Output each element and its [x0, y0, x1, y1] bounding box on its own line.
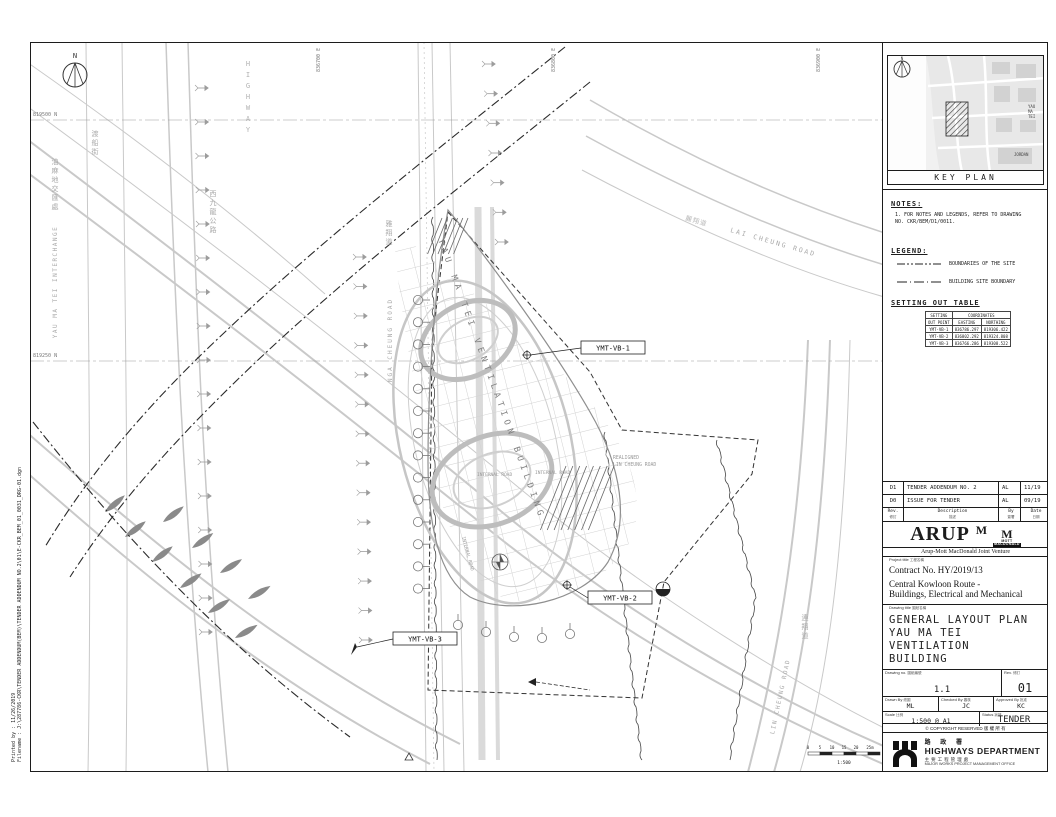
- grid-northing-1: 819500 N: [33, 112, 57, 118]
- so-col-easting: EASTING: [952, 319, 981, 326]
- keyplan-ymt-3: TEI: [1028, 114, 1036, 119]
- level-marker: [492, 554, 508, 570]
- mott-m2-logo: M: [1001, 528, 1012, 540]
- tunnel-loops: [363, 261, 608, 622]
- so-cell: YMT-VB-3: [926, 340, 953, 347]
- legend-line-site-boundary: [897, 261, 941, 267]
- legend-item-building-site: BUILDING SITE BOUNDARY: [897, 279, 1040, 285]
- road-label-lin-cheung: LIN CHEUNG ROAD: [769, 658, 792, 734]
- arup-logo: ARUP: [910, 523, 970, 546]
- grid-bubbles-bottom: [453, 614, 574, 643]
- road-label-lai-cheung: LAI CHEUNG ROAD: [729, 226, 816, 258]
- legend-label-site-boundary: BOUNDARIES OF THE SITE: [949, 261, 1015, 267]
- keyplan-section: N YAU MA TEI JORDAN KEY PLAN: [883, 42, 1048, 189]
- road-label-ferry-street-zh: 渡船街: [90, 130, 98, 157]
- rev-value: 01: [1002, 681, 1048, 695]
- legend-item-site-boundary: BOUNDARIES OF THE SITE: [897, 261, 1040, 267]
- rev-hd-by-zh: 簽署: [1008, 515, 1015, 520]
- internal-road-2: INTERNAL ROAD: [535, 470, 571, 476]
- keyplan-map: N YAU MA TEI JORDAN: [888, 56, 1043, 171]
- rev-cell: Rev. 修訂 01: [1001, 670, 1048, 696]
- note-item-1: 1. FOR NOTES AND LEGENDS, REFER TO DRAWI…: [895, 212, 1025, 225]
- rev-id: D1: [883, 482, 903, 494]
- road-label-highway: HIGHWAY: [244, 60, 252, 137]
- road-label-nga-cheung: NGA CHEUNG ROAD: [387, 298, 394, 382]
- title-block: N YAU MA TEI JORDAN KEY PLAN NOTES: 1. F…: [882, 42, 1048, 772]
- checked-by-value: JC: [939, 702, 993, 710]
- drawing-no-label-zh: 圖紙編號: [907, 671, 921, 675]
- drawing-no-label: Drawing no.: [885, 670, 906, 675]
- notes-legend-section: NOTES: 1. FOR NOTES AND LEGENDS, REFER T…: [883, 189, 1048, 481]
- setting-out-table: SETTING COORDINATES OUT POINT EASTING NO…: [925, 311, 1011, 347]
- so-cell: 836802.292: [952, 333, 981, 340]
- project-title-line2: Buildings, Electrical and Mechanical: [889, 589, 1042, 599]
- mott-m1-logo: M: [976, 524, 987, 536]
- highways-department-icon: [891, 741, 919, 767]
- rev-id: D0: [883, 495, 903, 507]
- plan-area: N 819500 N 819250 N 836700 E 836800 E 83…: [30, 42, 882, 772]
- road-label-interchange: YAU MA TEI INTERCHANGE: [52, 226, 59, 338]
- scale-bar: 0 5 10 15 20 25m 1:500: [807, 745, 880, 766]
- so-col-coordinates: COORDINATES: [952, 312, 1010, 319]
- drawing-title-line2: YAU MA TEI VENTILATION: [889, 627, 1042, 653]
- copyright-strip: © COPYRIGHT RESERVED 版 權 所 有: [883, 723, 1048, 732]
- drawing-numbers-box: Drawing no. 圖紙編號 1.1 Rev. 修訂 01 Drawn By…: [883, 669, 1048, 723]
- approved-by-value: KC: [994, 702, 1048, 710]
- project-title-line1: Central Kowloon Route -: [889, 579, 1042, 589]
- contract-no: Contract No. HY/2019/13: [889, 565, 1042, 575]
- so-cell: 836786.297: [952, 326, 981, 333]
- callout-ymt-vb-2: YMT-VB-2: [562, 580, 670, 604]
- so-col-northing: NORTHING: [981, 319, 1010, 326]
- realigned-road-note: REALIGNED LIN CHEUNG ROAD: [613, 455, 656, 468]
- revision-row-d0: D0 ISSUE FOR TENDER AL 09/19: [883, 495, 1048, 508]
- so-cell: 836766.286: [952, 340, 981, 347]
- north-arrow: N: [63, 52, 87, 87]
- so-cell: YMT-VB-2: [926, 333, 953, 340]
- department-office: MAJOR WORKS PROJECT MANAGEMENT OFFICE: [925, 762, 1041, 766]
- internal-road-1: INTERNAL ROAD: [477, 472, 513, 478]
- drawn-by-cell: Drawn By 繪圖 ML: [883, 697, 938, 711]
- revision-table: D1 TENDER ADDENDUM NO. 2 AL 11/19 D0 ISS…: [883, 481, 1048, 521]
- grid-easting-3: 836900 E: [816, 48, 822, 72]
- checked-by-cell: Checked By 審核 JC: [938, 697, 993, 711]
- drawing-title-line3: BUILDING: [889, 653, 1042, 666]
- scale-tick-1: 5: [819, 745, 822, 750]
- department-name: HIGHWAYS DEPARTMENT: [925, 747, 1041, 757]
- rev-hd-rev-zh: 修訂: [890, 515, 897, 520]
- scale-tick-2: 10: [830, 745, 835, 750]
- so-cell: YMT-VB-1: [926, 326, 953, 333]
- drawing-label-zh: 圖紙名稱: [912, 606, 926, 610]
- sheet-margin-info: Printed by : 11/26/2019 Filename : J:\28…: [12, 222, 24, 762]
- revision-row-d1: D1 TENDER ADDENDUM NO. 2 AL 11/19: [883, 482, 1048, 495]
- keyplan-site-hatch: [946, 102, 968, 136]
- keyplan-jordan: JORDAN: [1014, 152, 1029, 157]
- drawing-title-box: Drawing title 圖紙名稱 GENERAL LAYOUT PLAN Y…: [883, 604, 1048, 669]
- rev-by: AL: [998, 495, 1020, 507]
- realigned-line2: LIN CHEUNG ROAD: [613, 462, 656, 468]
- drawing-no-value: 1.1: [883, 685, 1001, 695]
- road-label-lai-cheung-zh: 麗翔道: [684, 213, 708, 228]
- road-label-interchange-zh: 油麻地交匯處: [50, 158, 58, 212]
- rev-hd-date-zh: 日期: [1033, 515, 1040, 520]
- tree-symbols: [195, 61, 508, 643]
- rev-description: TENDER ADDENDUM NO. 2: [903, 482, 998, 494]
- firm-logos: ARUP M M MOTT MACDONALD: [883, 521, 1048, 547]
- rev-date: 11/19: [1020, 482, 1048, 494]
- setting-out-heading: SETTING OUT TABLE: [891, 299, 1040, 307]
- filename-text: Filename : J:\287786-CKR\TENDER ADDENDUM…: [18, 222, 24, 762]
- scale-tick-3: 15: [842, 745, 847, 750]
- label-ymt-vb-2: YMT-VB-2: [603, 595, 637, 603]
- road-label-lin-cheung-zh: 連翔道: [800, 614, 808, 641]
- drawing-label: Drawing title: [889, 605, 911, 610]
- grid-northing-2: 819250 N: [33, 353, 57, 359]
- scale-tick-4: 20: [854, 745, 859, 750]
- callout-ymt-vb-3: YMT-VB-3: [351, 632, 457, 655]
- keyplan-caption: KEY PLAN: [888, 170, 1043, 184]
- scale-tick-0: 0: [807, 745, 810, 750]
- site-boundary: [33, 47, 590, 737]
- project-label-zh: 工程名稱: [910, 558, 924, 562]
- so-col-out-point: OUT POINT: [926, 319, 953, 326]
- so-cell: 819308.522: [981, 340, 1010, 347]
- keyplan-north-label: N: [901, 56, 904, 61]
- highways-department-box: 路 政 署 HIGHWAYS DEPARTMENT 主要工程管理處 MAJOR …: [883, 732, 1048, 774]
- so-row-2: YMT-VB-2 836802.292 819324.808: [926, 333, 1011, 340]
- rev-date: 09/19: [1020, 495, 1048, 507]
- realigned-line1: REALIGNED: [613, 455, 639, 461]
- grid-easting-2: 836800 E: [551, 48, 557, 72]
- drawing-sheet: Printed by : 11/26/2019 Filename : J:\28…: [0, 0, 1056, 817]
- interchange-roads: [30, 42, 882, 772]
- rev-by: AL: [998, 482, 1020, 494]
- scale-ratio: 1:500: [837, 760, 851, 766]
- drawn-by-value: ML: [883, 702, 938, 710]
- north-label: N: [73, 52, 77, 60]
- project-label: Project title: [889, 557, 909, 562]
- so-row-3: YMT-VB-3 836766.286 819308.522: [926, 340, 1011, 347]
- label-ymt-vb-3: YMT-VB-3: [408, 636, 442, 644]
- scale-tick-5: 25m: [866, 745, 874, 750]
- joint-venture-strip: Arup-Mott MacDonald Joint Venture: [883, 547, 1048, 556]
- rev-label: Rev.: [1004, 670, 1012, 675]
- plan-drawing: N 819500 N 819250 N 836700 E 836800 E 83…: [30, 42, 882, 772]
- revision-header-row: Rev.修訂 Description描述 By簽署 Date日期: [883, 508, 1048, 522]
- rev-hd-desc-zh: 描述: [949, 515, 956, 520]
- approved-by-cell: Approved By 批准 KC: [993, 697, 1048, 711]
- so-cell: 819306.422: [981, 326, 1010, 333]
- label-ymt-vb-1: YMT-VB-1: [596, 345, 630, 353]
- grid-easting-1: 836700 E: [316, 48, 322, 72]
- road-label-wkh-zh: 西九龍公路: [208, 190, 216, 235]
- so-cell: 819324.808: [981, 333, 1010, 340]
- rev-label-zh: 修訂: [1013, 671, 1020, 675]
- legend-label-building-site: BUILDING SITE BOUNDARY: [949, 279, 1015, 285]
- drawing-title-line1: GENERAL LAYOUT PLAN: [889, 614, 1042, 627]
- macdonald-label: MACDONALD: [993, 543, 1021, 547]
- legend-heading: LEGEND:: [891, 247, 1040, 255]
- notes-heading: NOTES:: [891, 200, 1040, 208]
- so-col-setting: SETTING: [926, 312, 953, 319]
- rev-description: ISSUE FOR TENDER: [903, 495, 998, 507]
- so-row-1: YMT-VB-1 836786.297 819306.422: [926, 326, 1011, 333]
- road-label-nga-cheung-zh: 雅翔道: [384, 220, 392, 247]
- legend-line-building-site: [897, 279, 941, 285]
- drawing-no-cell: Drawing no. 圖紙編號 1.1: [883, 670, 1001, 696]
- project-title-box: Project title 工程名稱 Contract No. HY/2019/…: [883, 556, 1048, 604]
